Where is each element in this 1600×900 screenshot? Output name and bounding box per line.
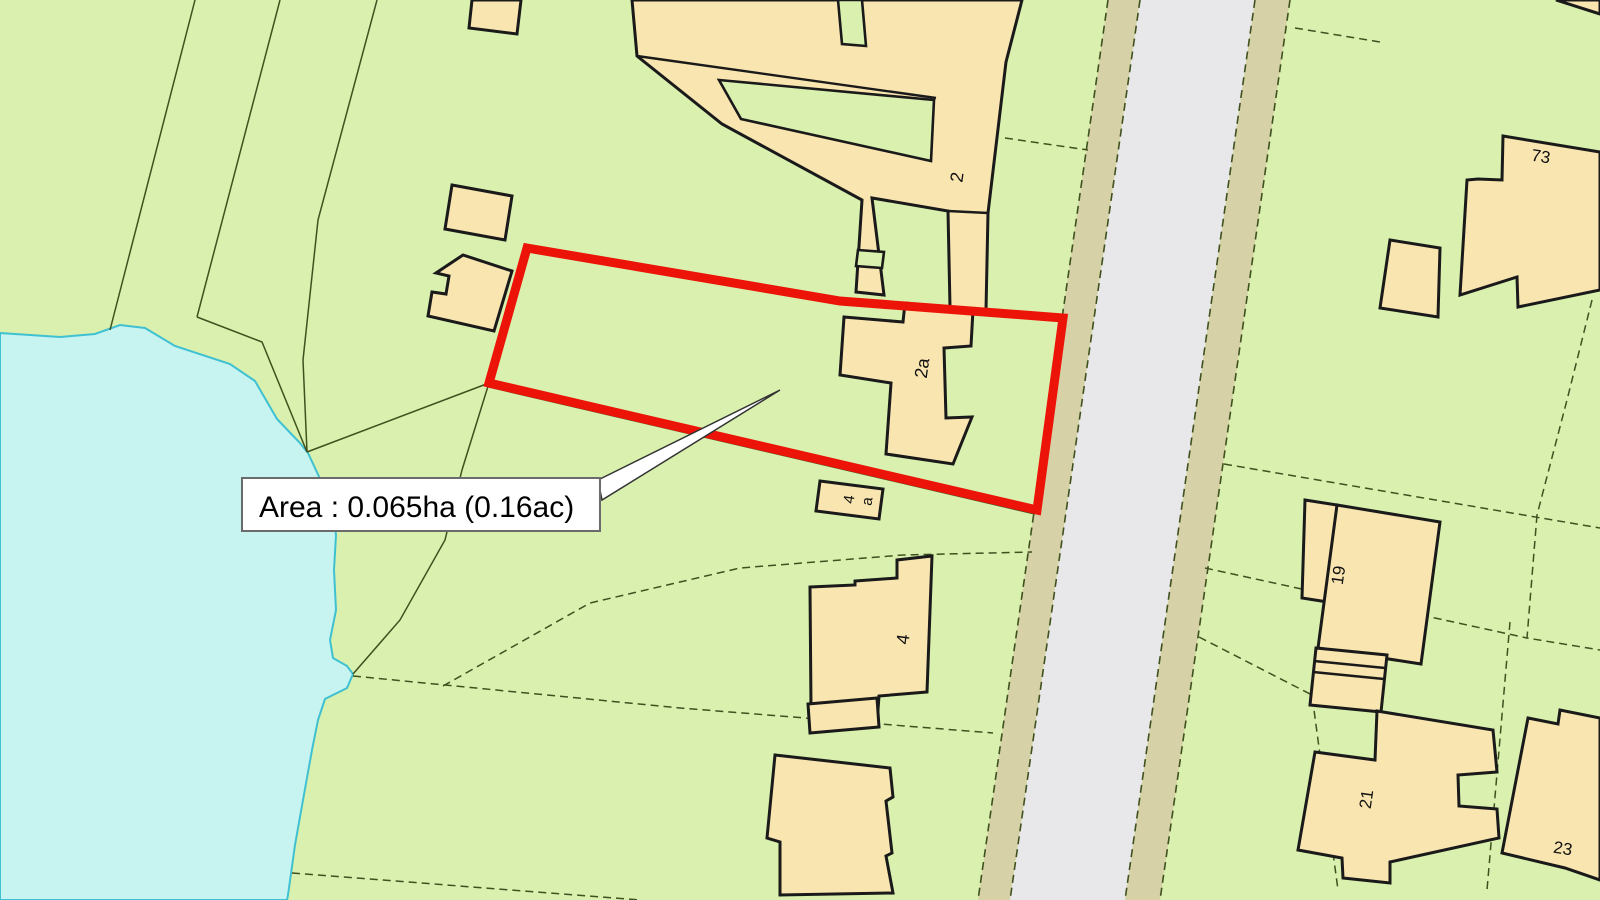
- house-number-19: 19: [1328, 565, 1349, 586]
- outbuilding-73: [1380, 240, 1440, 317]
- garage-19: [1310, 648, 1387, 712]
- map-canvas[interactable]: 22a4a473192123 Area : 0.065ha (0.16ac): [0, 0, 1600, 900]
- building-4-annex: [808, 698, 879, 733]
- outbuilding-nw-top: [469, 0, 521, 34]
- house-number-23: 23: [1552, 838, 1574, 860]
- area-label-text: Area : 0.065ha (0.16ac): [259, 491, 574, 524]
- property-map[interactable]: 22a4a473192123 Area : 0.065ha (0.16ac): [0, 0, 1600, 900]
- outbuilding-nw-a: [445, 185, 512, 240]
- house-number-21: 21: [1356, 789, 1377, 810]
- courtyard-foot: [856, 250, 884, 268]
- house-number-73: 73: [1530, 146, 1552, 168]
- building-bottom-left: [767, 755, 893, 895]
- map-generated-layers: 22a4a473192123: [0, 0, 1600, 900]
- gap-notch-top: [838, 0, 866, 46]
- house-number-2a: 2a: [911, 356, 934, 380]
